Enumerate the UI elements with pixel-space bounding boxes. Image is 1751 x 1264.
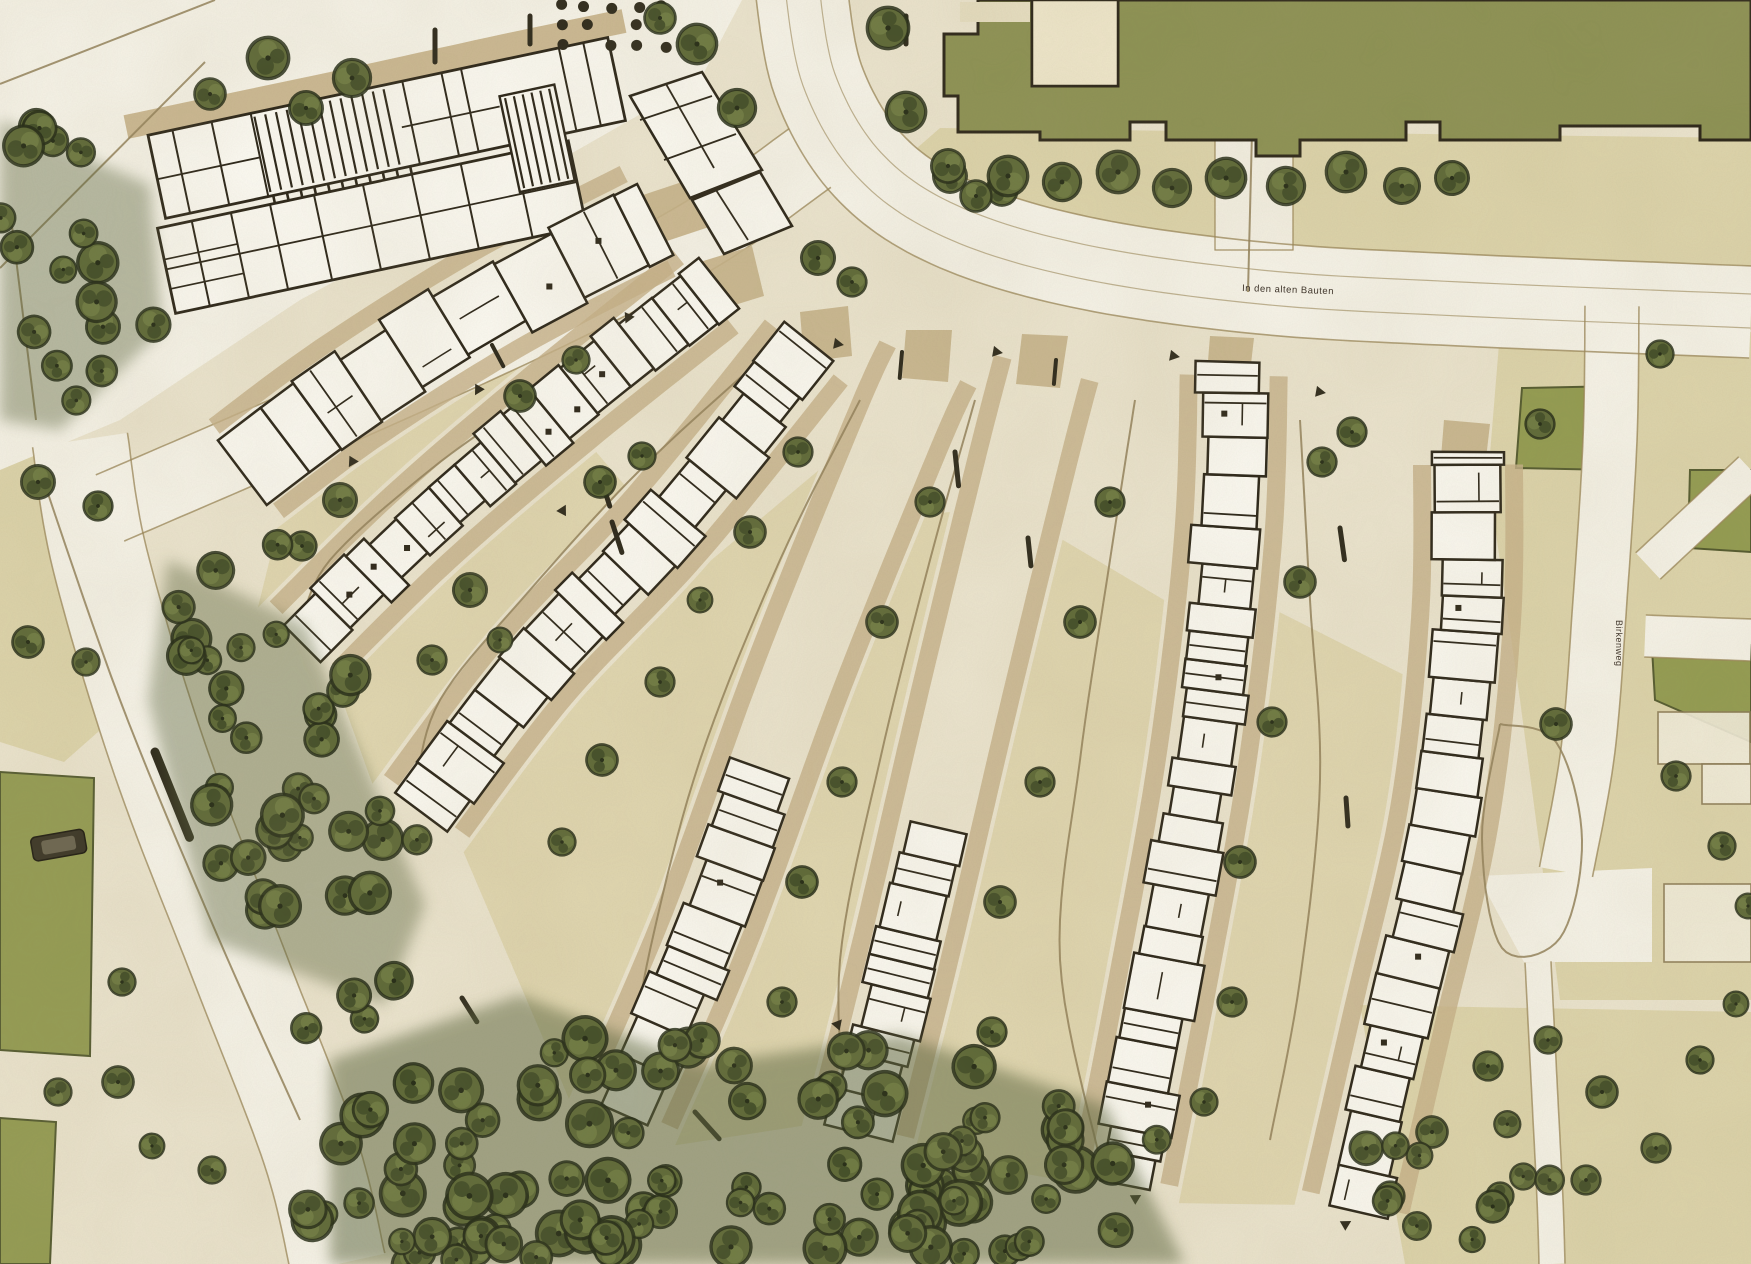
road-right_lower — [1538, 962, 1552, 1264]
tree-icon — [333, 59, 371, 97]
planting-dot — [557, 19, 568, 30]
planting-dot — [631, 40, 642, 51]
planting-dot — [582, 19, 593, 30]
tree-icon — [139, 1133, 165, 1159]
bench-mark — [1054, 360, 1056, 384]
tree-icon — [798, 1079, 838, 1119]
planting-dot — [661, 42, 672, 53]
bench-mark — [900, 352, 902, 378]
street-label-side: Birkenweg — [1614, 620, 1624, 667]
planting-dot — [634, 2, 645, 13]
tree-icon — [814, 1203, 846, 1235]
tree-icon — [518, 1065, 558, 1105]
green-building-courtyard — [1032, 0, 1118, 86]
site-plan-map: In den alten BautenBirkenweg — [0, 0, 1751, 1264]
tree-icon — [190, 783, 233, 826]
bench-mark — [955, 452, 959, 486]
planting-dot — [631, 19, 642, 30]
planting-dot — [557, 39, 568, 50]
tree-icon — [566, 1101, 612, 1147]
tree-icon — [446, 1127, 479, 1160]
tree-icon — [1025, 767, 1056, 798]
planting-dot — [606, 3, 617, 14]
tree-icon — [289, 1191, 326, 1228]
tree-icon — [1349, 1131, 1384, 1166]
site-plan-svg: In den alten BautenBirkenweg — [0, 0, 1751, 1264]
tree-icon — [209, 705, 237, 733]
tree-icon — [924, 1132, 963, 1171]
tree-icon — [21, 465, 55, 499]
tree-icon — [841, 1106, 874, 1139]
bench-mark — [1346, 798, 1348, 826]
tree-icon — [231, 723, 261, 753]
tree-icon — [1587, 1077, 1618, 1108]
planting-dot — [578, 1, 589, 12]
road-branch_east — [1645, 636, 1751, 640]
bench-mark — [1028, 538, 1031, 566]
tree-icon — [0, 230, 34, 264]
tree-icon — [1258, 708, 1287, 737]
tree-icon — [867, 7, 908, 48]
planting-dot — [605, 40, 616, 51]
tree-icon — [414, 1218, 451, 1255]
